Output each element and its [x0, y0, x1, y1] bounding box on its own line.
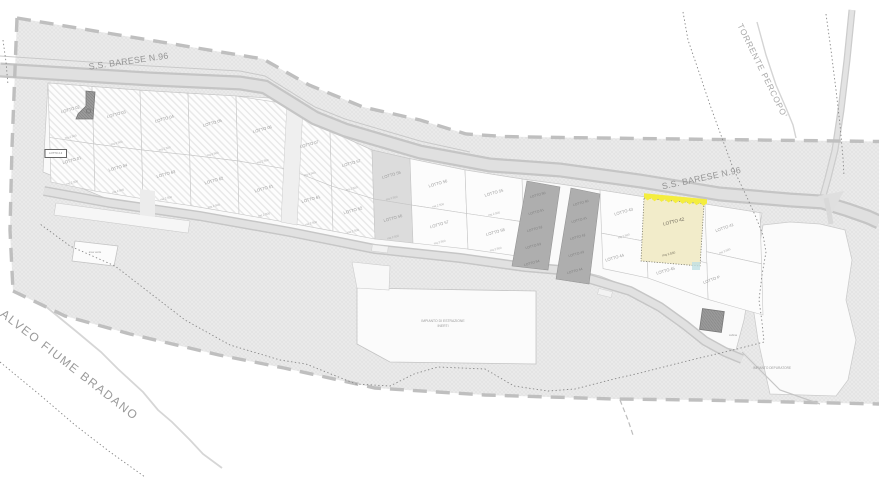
svg-text:IMPIANTO DEPURATORE: IMPIANTO DEPURATORE	[753, 366, 791, 370]
svg-text:cabina: cabina	[729, 333, 738, 337]
svg-text:LOTTO 2-3: LOTTO 2-3	[49, 151, 63, 155]
svg-text:INERTI: INERTI	[437, 324, 448, 328]
svg-text:IMPIANTO DI ESTRAZIONE: IMPIANTO DI ESTRAZIONE	[421, 319, 465, 323]
svg-text:area verde: area verde	[89, 250, 102, 254]
